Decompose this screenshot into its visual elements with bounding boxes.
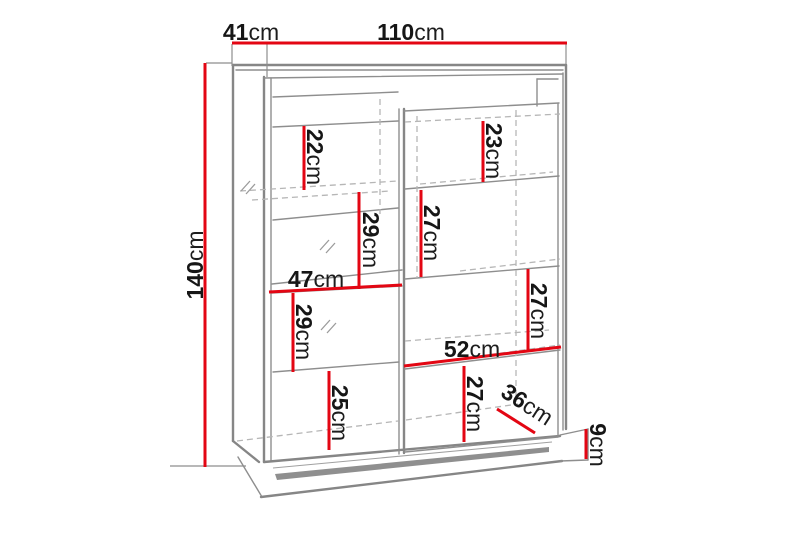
dim-label-bottom-depth: 36cm xyxy=(497,378,558,430)
furniture-dimension-diagram: 41cm 110cm 140cm 22cm 23cm 29cm 27cm 47c… xyxy=(0,0,800,533)
dim-label-height: 140cm xyxy=(182,230,208,299)
dim-label-right-shelf-top: 23cm xyxy=(481,123,507,179)
side-panel-bottom-edge xyxy=(233,441,259,462)
dimension-diagram-canvas: 41cm 110cm 140cm 22cm 23cm 29cm 27cm 47c… xyxy=(0,0,800,533)
left-section-top-line xyxy=(273,92,398,97)
dim-label-plinth-height: 9cm xyxy=(585,423,611,466)
cabinet-front-top-rail xyxy=(264,74,563,78)
right-shelf-hidden-edge xyxy=(460,259,560,271)
dim-label-right-section-width: 52cm xyxy=(444,336,500,362)
dim-label-right-shelf-bottom: 27cm xyxy=(462,376,488,432)
glass-mark-icon xyxy=(241,181,255,194)
dim-label-right-shelf-second: 27cm xyxy=(419,205,445,261)
dimension-labels: 41cm 110cm 140cm 22cm 23cm 29cm 27cm 47c… xyxy=(182,19,611,467)
dim-label-left-section-width: 47cm xyxy=(288,266,344,292)
plinth-right-bottom-edge xyxy=(560,460,588,461)
door-top-edge xyxy=(404,103,559,111)
bottom-hidden-edge xyxy=(237,421,398,441)
cabinet-front-bottom-edge xyxy=(264,436,560,462)
dim-label-depth-top: 41cm xyxy=(223,19,279,45)
plinth-right-top-edge xyxy=(560,429,588,435)
floor-line xyxy=(261,461,562,497)
glass-mark-icon xyxy=(320,240,335,253)
dim-label-width-top: 110cm xyxy=(377,19,445,45)
dim-label-left-shelf-second: 29cm xyxy=(358,212,384,268)
door-hidden-top-edge xyxy=(405,114,560,122)
glass-mark-icon xyxy=(321,320,336,333)
left-shelf-1 xyxy=(273,121,398,127)
dim-label-left-shelf-top: 22cm xyxy=(302,129,328,185)
dim-label-right-shelf-third: 27cm xyxy=(526,283,552,339)
dim-label-left-shelf-bottom: 25cm xyxy=(327,385,353,441)
dim-label-left-shelf-third: 29cm xyxy=(291,304,317,360)
glass-shelf-hidden-edge xyxy=(252,191,390,200)
